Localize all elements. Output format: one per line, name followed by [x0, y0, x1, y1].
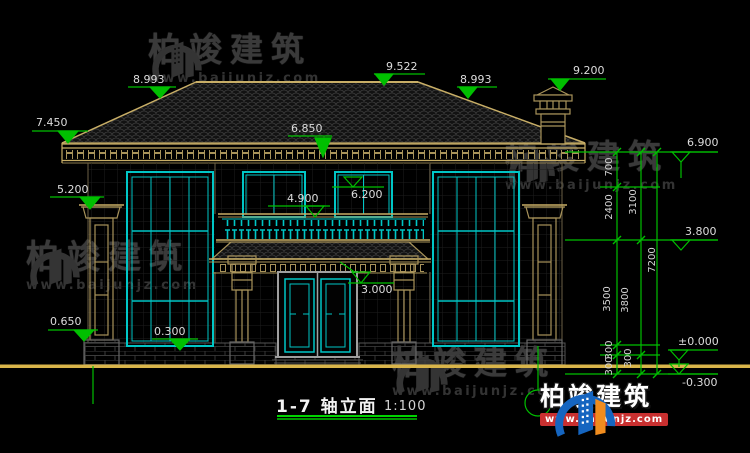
main-roof [62, 82, 585, 143]
baijun-logo-color-icon [540, 383, 628, 451]
balcony-railing [216, 214, 430, 242]
ground-line [0, 365, 750, 369]
cad-elevation-screenshot: 柏竣建筑 www.baijunjz.com 柏竣建筑 www.baijunjz.… [0, 0, 750, 453]
porch-roof [209, 242, 431, 273]
entrance-door [272, 272, 363, 363]
baijun-brand-logo: 柏竣建筑 www.baijunjz.com [540, 383, 668, 426]
